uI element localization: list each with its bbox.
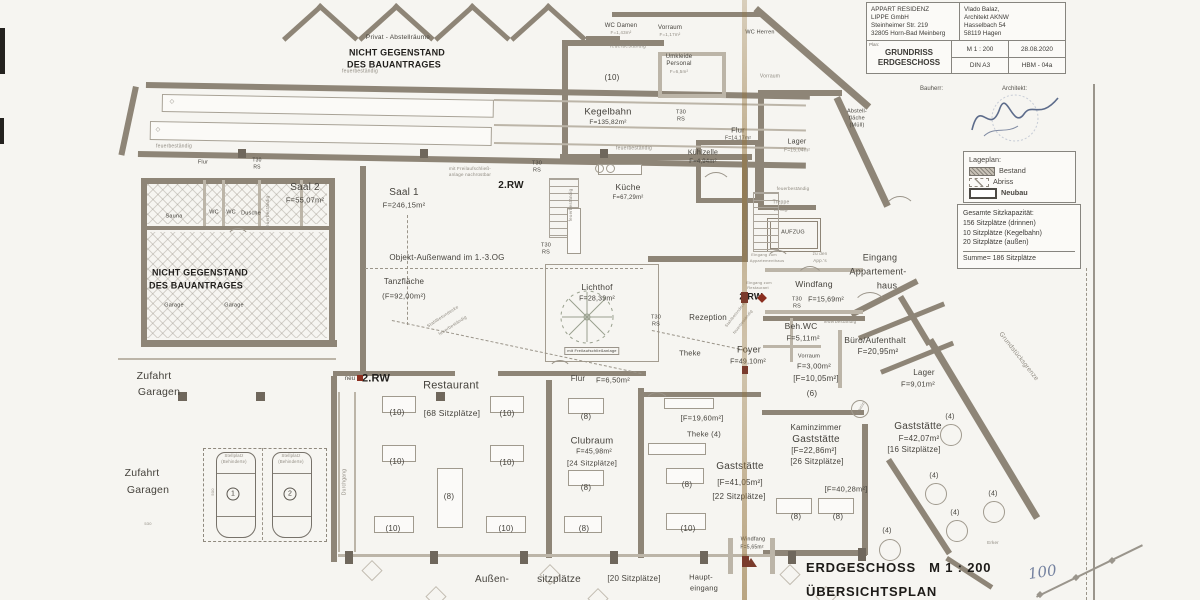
pillar — [788, 551, 796, 564]
entrance-arrow-icon — [745, 558, 757, 567]
wall-segment — [612, 12, 760, 17]
pillar — [238, 149, 246, 158]
architect-line: Hasselbach 54 — [964, 22, 1061, 30]
plan-label: 2.RW — [498, 181, 524, 191]
footer-title: ERDGESCHOSS M 1 : 200 — [806, 560, 991, 575]
furniture-round-table — [595, 164, 604, 173]
plan-label: 2 — [284, 488, 297, 501]
plan-label: RS — [253, 166, 260, 171]
plan-label: F=1,43m² — [611, 31, 632, 36]
plan-label: Durchgang — [343, 469, 348, 495]
plan-label: feuerbeständig — [266, 196, 271, 229]
wall-segment — [722, 52, 726, 96]
plan-label: (Müll) — [850, 123, 865, 129]
plan-label: RS — [793, 304, 801, 310]
furniture-round-table — [879, 539, 901, 561]
plan-label: Rezeption — [689, 314, 727, 322]
plan-label: Lager — [913, 369, 934, 377]
plan-label: Kegelbahn — [584, 107, 631, 117]
capacity-line: Gesamte Sitzkapazität: — [963, 209, 1075, 219]
pillar — [520, 551, 528, 564]
plan-label: neu — [345, 376, 356, 382]
wall-segment — [648, 256, 748, 262]
plan-label: F=42,07m² — [899, 435, 940, 443]
plan-label: (Behinderte) — [278, 460, 303, 464]
wall-segment — [545, 3, 587, 42]
plan-label: feuerbeständig — [342, 70, 378, 75]
legend-label: Neubau — [1001, 188, 1028, 199]
legend-title: Lageplan: — [969, 155, 1070, 166]
plan-label: F=6,5m² — [670, 70, 688, 75]
wall-segment — [317, 3, 359, 42]
plan-label: Garage — [224, 303, 244, 309]
signature-area: Bauherr: Architekt: — [880, 86, 1080, 148]
wall-segment — [510, 3, 552, 42]
plan-label: (8) — [581, 413, 591, 421]
plan-label: (10) — [385, 525, 400, 533]
plan-label: [22 Sitzplätze] — [712, 493, 765, 501]
plan-label: Restaurant — [423, 381, 479, 392]
plan-label: feuerbeständig — [616, 147, 652, 152]
wall-segment — [262, 448, 264, 540]
neubau-swatch-icon — [969, 188, 997, 199]
plan-label: RS — [533, 168, 541, 174]
pillar — [345, 551, 353, 564]
outdoor-table — [361, 560, 382, 581]
legend-item-neubau: Neubau — [969, 188, 1070, 199]
plan-label: RS — [677, 117, 685, 123]
architect-line: Architekt AKNW — [964, 14, 1061, 22]
plan-label: WC Herren — [745, 30, 774, 36]
handwritten-note: 100 — [1027, 561, 1058, 583]
furniture-round-table — [940, 424, 962, 446]
plan-label: Appartementhaus — [750, 259, 785, 263]
wall-segment — [1086, 268, 1088, 600]
plan-label: [F=22,86m²] — [791, 447, 837, 455]
plan-label: Lichthof — [581, 283, 612, 292]
plan-label: [F=41,05m²] — [717, 479, 763, 487]
plan-label: F=15,04m² — [784, 149, 810, 154]
door-arc — [548, 360, 572, 384]
wall-segment — [658, 94, 726, 98]
architect-address: Vlado Balaz, Architekt AKNW Hasselbach 5… — [960, 3, 1065, 40]
plan-label: F=28,39m² — [579, 296, 615, 303]
plan-date: 28.08.2020 — [1009, 41, 1065, 57]
plan-label: (10) — [389, 409, 404, 417]
plan-label: F=20,95m² — [858, 348, 899, 356]
wall-segment — [469, 3, 511, 42]
wall-segment — [360, 166, 366, 374]
plan-label: [68 Sitzplätze] — [424, 409, 480, 418]
plan-label: Clubraum — [571, 436, 614, 446]
plan-label: Eingang — [863, 254, 897, 263]
wall-segment — [331, 376, 337, 562]
capacity-line: 20 Sitzplätze (außen) — [963, 238, 1075, 248]
wall-segment — [141, 340, 337, 347]
plan-label: DES BAUANTRAGES — [149, 282, 243, 291]
plan-label: F=49,10m² — [730, 359, 766, 366]
bowling-lane — [150, 121, 492, 146]
door-arc — [884, 196, 916, 228]
footer-subtitle: ÜBERSICHTSPLAN — [806, 584, 937, 599]
plan-label: F=9,01m² — [901, 380, 935, 388]
outdoor-table — [779, 564, 800, 585]
wall-segment — [118, 358, 336, 360]
plan-label: Außen- — [475, 575, 509, 585]
plan-label: Dusche — [241, 211, 261, 217]
wall-segment — [434, 3, 476, 42]
door-arc — [226, 228, 250, 252]
abriss-swatch-icon — [969, 178, 989, 187]
legend-box: Lageplan: Bestand Abriss Neubau — [963, 151, 1076, 203]
pillar — [700, 551, 708, 564]
plan-label: Vorraum — [658, 25, 682, 31]
plan-label: anlage nachrüstbar — [449, 173, 491, 178]
fold-mark — [742, 366, 748, 374]
wall-segment — [560, 154, 752, 160]
plan-label: Saal 2 — [290, 183, 320, 193]
plan-label: Garagen — [127, 485, 169, 496]
plan-label: (10) — [680, 525, 695, 533]
plan-label: (4) — [882, 528, 891, 535]
plan-label: fläche — [849, 116, 865, 122]
plan-label: feuerbeständig — [824, 320, 857, 325]
plan-label: Personal — [666, 61, 691, 67]
plan-label: ◇ — [170, 99, 175, 105]
plan-label: (F=92,00m²) — [382, 292, 426, 300]
plan-label: (10) — [499, 410, 514, 418]
wall-segment — [203, 180, 206, 226]
wall-segment — [562, 40, 568, 158]
capacity-sum: Summe= 186 Sitzplätze — [963, 251, 1075, 264]
plan-label: (8) — [579, 525, 589, 533]
plan-label: (10) — [389, 458, 404, 466]
legend-label: Abriss — [993, 177, 1013, 188]
plan-label: F=15,69m² — [808, 297, 844, 304]
wall-segment — [407, 215, 409, 325]
capacity-line: 156 Sitzplätze (drinnen) — [963, 219, 1075, 229]
plan-label: Treppe — [773, 201, 790, 206]
plan-label: Objekt-Außenwand im 1.-3.OG — [389, 254, 504, 262]
plan-label: Restaurant — [747, 286, 769, 290]
wall-segment — [765, 310, 863, 314]
plan-label: F=3,00m² — [797, 362, 831, 370]
plan-label: Grundstücksgrenze — [997, 331, 1039, 382]
wall-segment — [763, 345, 821, 348]
wall-segment — [770, 538, 775, 574]
furniture-round-table — [925, 483, 947, 505]
furniture-table — [648, 443, 706, 455]
plan-label: T30 — [792, 297, 802, 303]
wall-segment — [638, 388, 644, 558]
red-marker — [357, 375, 363, 381]
plan-label: F=5,11m² — [786, 334, 819, 342]
plan-label: F=4,94m² — [689, 159, 716, 165]
plan-label: Stellplatz — [225, 454, 244, 458]
floorplan-canvas: Privat - AbstellräumeNICHT GEGENSTANDDES… — [0, 0, 1200, 600]
plan-label: (10) — [498, 525, 513, 533]
plan-label: (8) — [581, 484, 591, 492]
bestand-swatch-icon — [969, 167, 995, 176]
plan-label: T30 — [532, 161, 542, 167]
plan-label: ◇ — [156, 127, 161, 133]
plan-label: Garagen — [138, 387, 180, 398]
plan-label: NICHT GEGENSTAND — [349, 49, 445, 58]
legend-label: Bestand — [999, 166, 1026, 177]
plan-label: RS — [652, 322, 660, 328]
legend-item-bestand: Bestand — [969, 166, 1070, 177]
plan-label: Beh.WC — [785, 322, 818, 331]
client-address: APPART RESIDENZ LIPPE GmbH Steinheimer S… — [867, 3, 960, 40]
plan-label: feuerbeständig — [777, 187, 810, 192]
plan-label: haus — [877, 282, 897, 291]
plan-label: 530 — [144, 522, 151, 526]
plan-label: (8) — [791, 513, 801, 521]
client-line: Steinheimer Str. 219 — [871, 22, 955, 30]
plan-label: F=67,29m² — [613, 195, 644, 201]
plan-label: Erker — [987, 541, 999, 546]
plan-label: WC — [209, 210, 219, 216]
plan-label: [F=19,60m²] — [681, 414, 724, 422]
wall-segment — [762, 410, 864, 415]
plan-name-line2: ERDGESCHOSS — [867, 58, 951, 67]
plan-tag: Plan: — [869, 42, 879, 47]
plan-label: AUFZUG — [781, 230, 805, 236]
plan-label: RS — [542, 250, 550, 256]
plan-label: [F=40,28m²] — [825, 485, 868, 493]
plan-label: F=1,17m² — [660, 33, 681, 38]
plan-label: Flur — [198, 160, 208, 166]
plan-label: Flur — [571, 375, 586, 383]
plan-label: (8) — [833, 513, 843, 521]
plan-label: 2.RW — [362, 374, 390, 385]
plan-label: mit Freilaufschließ- — [449, 167, 491, 172]
plan-label: Vorraum — [760, 75, 780, 80]
wall-segment — [354, 392, 356, 552]
plan-label: 1 — [227, 488, 240, 501]
plan-label: [26 Sitzplätze] — [790, 458, 843, 466]
furniture-round-table — [606, 164, 615, 173]
plan-label: (6) — [807, 390, 817, 398]
plan-label: Abstell- — [847, 109, 867, 115]
plan-label: F=135,82m² — [589, 120, 626, 127]
plan-scale: M 1 : 200 — [952, 41, 1009, 57]
plan-label: (8) — [682, 481, 692, 489]
plan-label: Eingang zum — [751, 253, 777, 257]
plan-label: Vorraum — [798, 354, 820, 360]
plan-label: Gaststätte — [716, 462, 764, 472]
plan-sheet: HBM - 04a — [1009, 58, 1065, 74]
plan-name: Plan: GRUNDRISS ERDGESCHOSS — [867, 41, 952, 73]
plan-label: Theke (4) — [687, 430, 721, 438]
plan-label: (4) — [988, 491, 997, 498]
plan-label: T30 — [676, 110, 686, 116]
pillar — [610, 551, 618, 564]
plan-label: WC — [226, 210, 236, 216]
plan-label: (Behinderte) — [221, 460, 246, 464]
plan-label: Büro/Aufenthalt — [844, 336, 906, 345]
client-line: APPART RESIDENZ — [871, 6, 955, 14]
plan-label: Zufahrt — [137, 371, 172, 382]
scan-artifact — [0, 28, 5, 74]
title-block: APPART RESIDENZ LIPPE GmbH Steinheimer S… — [866, 2, 1066, 74]
pillar — [256, 392, 265, 401]
wall-segment — [222, 180, 225, 226]
plan-label: eingang — [690, 584, 718, 592]
pillar — [600, 149, 608, 158]
plan-label: feuerbeständig — [610, 45, 646, 50]
plan-label: Windfang — [795, 280, 833, 289]
plan-label: Küche — [615, 183, 640, 192]
furniture-table — [664, 398, 714, 409]
client-line: LIPPE GmbH — [871, 14, 955, 22]
plan-label: (8) — [444, 493, 454, 501]
wall-segment — [258, 180, 261, 226]
plan-label: Gaststätte — [894, 422, 942, 432]
client-line: 32805 Horn-Bad Meinberg — [871, 30, 955, 38]
capacity-line: 10 Sitzplätze (Kegelbahn) — [963, 229, 1075, 239]
plan-label: Tanzfläche — [384, 278, 424, 286]
plan-name-line1: GRUNDRISS — [867, 48, 951, 57]
plan-label: T30 — [252, 159, 261, 164]
signature-icon — [880, 86, 1080, 148]
plan-label: Lager — [788, 139, 807, 146]
architect-line: Vlado Balaz, — [964, 6, 1061, 14]
plan-label: (4) — [950, 510, 959, 517]
door-arc — [700, 172, 732, 204]
plan-label: F=246,15m² — [383, 201, 426, 209]
plan-label: Umkleide — [666, 54, 693, 60]
plan-label: Haupt- — [689, 573, 713, 581]
plan-label: NICHT GEGENSTAND — [152, 269, 248, 278]
outdoor-table — [587, 588, 608, 600]
plan-label: sitzplätze — [537, 575, 581, 585]
plan-label: 18 Stg. — [774, 208, 789, 212]
plan-label: Theke — [679, 349, 701, 357]
plan-label: App.'s — [813, 259, 827, 264]
pillar — [430, 551, 438, 564]
plan-label: Privat - Abstellräume — [366, 35, 430, 42]
wall-segment — [658, 52, 662, 96]
plan-label: [20 Sitzplätze] — [607, 575, 660, 583]
plan-label: Kühlzelle — [688, 150, 718, 157]
plan-label: feuerbeständig — [156, 145, 192, 150]
plan-label: Kaminzimmer — [790, 424, 841, 432]
plan-label: 500 — [211, 488, 215, 495]
plan-label: Zufahrt — [125, 468, 160, 479]
fold-mark — [741, 292, 748, 303]
plan-label: Saal 1 — [389, 188, 419, 198]
furniture-table — [598, 164, 642, 175]
plan-label: [24 Sitzplätze] — [567, 459, 617, 467]
plan-label: T30 — [541, 243, 551, 249]
outdoor-table — [425, 586, 446, 600]
plan-label: Foyer — [737, 346, 761, 355]
wall-segment — [546, 380, 552, 558]
wall-segment — [329, 178, 335, 347]
plan-label: zu den — [813, 252, 828, 257]
plan-label: WC Damen — [605, 23, 638, 29]
wall-segment — [1093, 84, 1095, 600]
plan-label: (10) — [604, 74, 619, 82]
plan-label: (4) — [929, 473, 938, 480]
wall-segment — [763, 550, 867, 556]
plan-label: feuerbeständig — [569, 189, 574, 222]
architekt-label: Architekt: — [1002, 86, 1027, 92]
plan-label: F=55,07m² — [286, 196, 324, 204]
plan-label: Stellplatz — [282, 454, 301, 458]
plan-label: F=14,17m² — [725, 137, 751, 142]
pillar — [436, 392, 445, 401]
plan-label: (10) — [499, 459, 514, 467]
plan-label: F=6,50m² — [596, 376, 630, 384]
plan-label: (4) — [945, 414, 954, 421]
plan-label: Appartement- — [850, 268, 907, 277]
furniture-round-table — [983, 501, 1005, 523]
plan-label: [F=10,05m²] — [793, 375, 839, 383]
door-arc — [852, 292, 888, 328]
scan-artifact — [0, 118, 4, 144]
furniture-round-table — [946, 520, 968, 542]
pillar — [420, 149, 428, 158]
plan-label: mit Freilaufschließanlage — [564, 347, 619, 355]
plan-label: Gaststätte — [792, 435, 840, 445]
plan-label: F=45,98m² — [576, 449, 612, 456]
capacity-box: Gesamte Sitzkapazität: 156 Sitzplätze (d… — [957, 204, 1081, 269]
legend-item-abriss: Abriss — [969, 177, 1070, 188]
plan-label: Garage — [164, 303, 184, 309]
plan-label: T30 — [651, 315, 661, 321]
wall-segment — [758, 90, 842, 96]
bauherr-label: Bauherr: — [920, 86, 943, 92]
plan-label: Sauna — [166, 214, 183, 220]
plan-label: [16 Sitzplätze] — [887, 446, 940, 454]
plan-format: DIN A3 — [952, 58, 1009, 74]
wall-segment — [141, 178, 147, 346]
wall-segment — [338, 392, 340, 552]
bowling-lane — [162, 94, 494, 118]
wall-segment — [282, 3, 324, 42]
wall-segment — [118, 86, 138, 156]
architect-line: 58119 Hagen — [964, 30, 1061, 38]
